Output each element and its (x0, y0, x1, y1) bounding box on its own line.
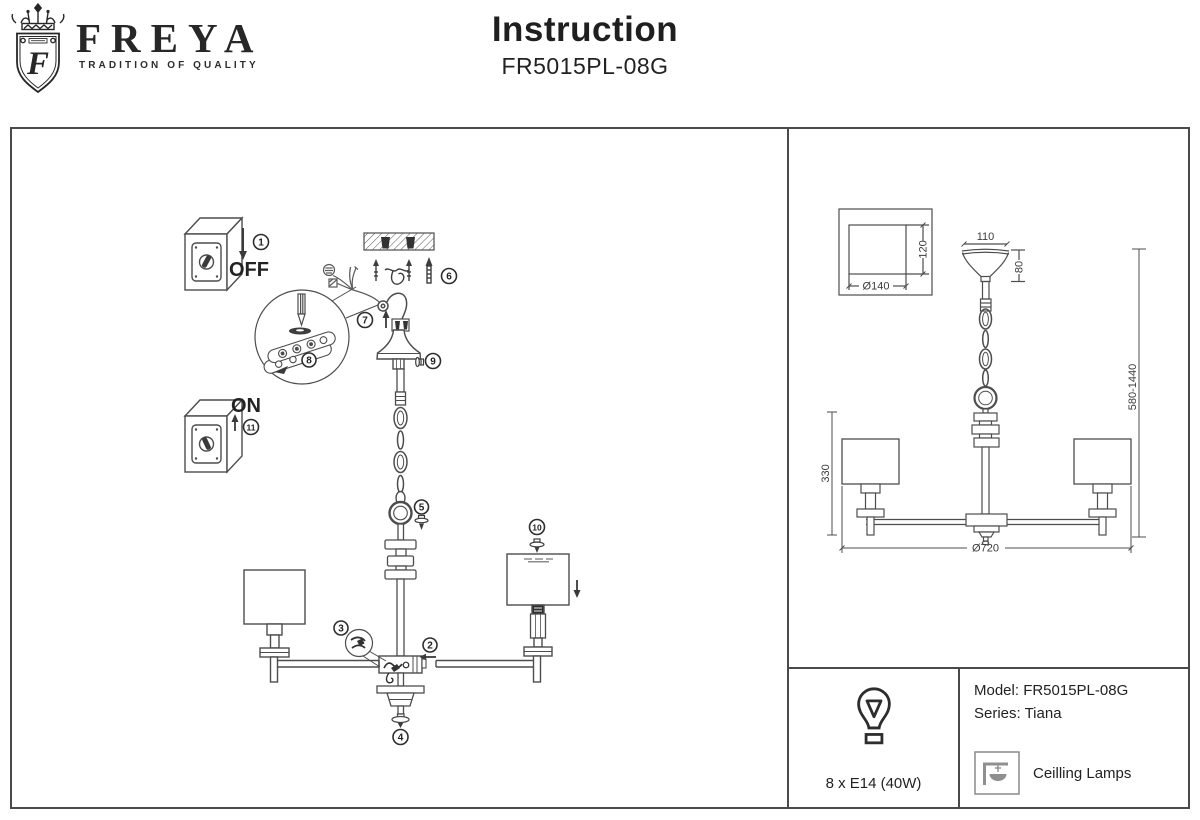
instruction-sheet: F FREYA TRADITION OF QUALITY Instruction… (0, 0, 1200, 820)
step-badge-2: 2 (423, 638, 437, 652)
bottom-finial (377, 673, 424, 728)
dim-canopy-height: 80 (1014, 261, 1026, 273)
supply-wires (324, 265, 380, 303)
ceiling-lamp-icon (974, 751, 1020, 795)
step-badge-10: 10 (530, 520, 545, 535)
product-info-row: 8 x E14 (40W) Model: FR5015PL-08G Series… (789, 667, 1188, 807)
svg-text:11: 11 (247, 422, 256, 432)
dim-diameter: Ø720 (972, 543, 999, 555)
dim-body-height: 330 (820, 464, 832, 482)
assembly-panel: 1 OFF ON (12, 129, 789, 807)
ring-screw-icon (415, 516, 428, 531)
category-label: Ceilling Lamps (1033, 765, 1131, 782)
chandelier-body (842, 409, 1131, 545)
centre-column (385, 524, 416, 656)
content-frame: 1 OFF ON (10, 127, 1190, 809)
suspension-chain (390, 369, 412, 524)
product-model: Model: FR5015PL-08G (974, 682, 1128, 699)
dim-plate-width: Ø140 (863, 281, 890, 293)
step-badge-6: 6 (442, 269, 457, 284)
mounting-hardware (373, 257, 433, 284)
shade-down-arrow-icon (574, 580, 581, 598)
canopy-sideview (962, 242, 1026, 312)
step-badge-5: 5 (415, 500, 429, 514)
svg-text:6: 6 (446, 272, 452, 283)
step-badge-4: 4 (393, 730, 408, 745)
dim-height-range: 580-1440 (1127, 364, 1139, 411)
svg-text:2: 2 (427, 641, 433, 652)
title-block: Instruction FR5015PL-08G (385, 10, 785, 80)
category-row: Ceilling Lamps (974, 751, 1131, 795)
product-id-cell: Model: FR5015PL-08G Series: Tiana (960, 669, 1188, 807)
dim-canopy-width: 110 (977, 231, 995, 243)
anchor-slot (406, 237, 415, 249)
ceiling-section (364, 233, 434, 250)
bulb-icon (851, 686, 897, 768)
hanging-hook (378, 293, 409, 331)
svg-text:9: 9 (430, 357, 436, 368)
on-label: ON (231, 395, 261, 417)
right-arm-assembly (436, 554, 569, 682)
svg-text:8: 8 (306, 356, 312, 367)
svg-text:5: 5 (419, 503, 425, 514)
assembly-diagram: 1 OFF ON (12, 129, 787, 807)
svg-text:7: 7 (362, 316, 368, 327)
terminal-detail-magnifier: 8 (255, 287, 378, 384)
canopy-screw-icon (416, 358, 424, 367)
dim-plate-depth: 120 (918, 240, 930, 258)
off-label: OFF (229, 259, 269, 281)
model-number: FR5015PL-08G (385, 53, 785, 80)
dim-chain (975, 309, 997, 409)
step-badge-3: 3 (334, 621, 348, 635)
page-title: Instruction (385, 10, 785, 50)
svg-text:3: 3 (338, 624, 344, 635)
canopy (377, 330, 421, 369)
step-badge-1: 1 (254, 235, 269, 250)
dimensions-diagram: Ø140 120 (789, 129, 1188, 667)
brand-name: FREYA (76, 14, 263, 62)
step-badge-9: 9 (426, 354, 441, 369)
product-series: Series: Tiana (974, 705, 1062, 722)
bulb-spec-cell: 8 x E14 (40W) (789, 669, 960, 807)
step-badge-8: 8 (302, 353, 316, 367)
left-arm-assembly (244, 570, 379, 682)
svg-text:10: 10 (532, 522, 542, 532)
step-badge-7: 7 (358, 313, 373, 328)
shade-screw-icon (530, 539, 544, 553)
hook-up-arrow-icon (383, 310, 390, 328)
freya-shield-logo: F (6, 2, 70, 98)
step-badge-11: 11 (244, 420, 259, 435)
anchor-slot (381, 237, 390, 249)
logo-f-monogram: F (26, 46, 49, 82)
brand-tagline: TRADITION OF QUALITY (79, 60, 259, 71)
svg-text:1: 1 (258, 238, 264, 249)
bulb-spec-label: 8 x E14 (40W) (826, 775, 922, 792)
dimensions-panel: Ø140 120 (789, 129, 1188, 807)
svg-text:4: 4 (398, 733, 404, 744)
